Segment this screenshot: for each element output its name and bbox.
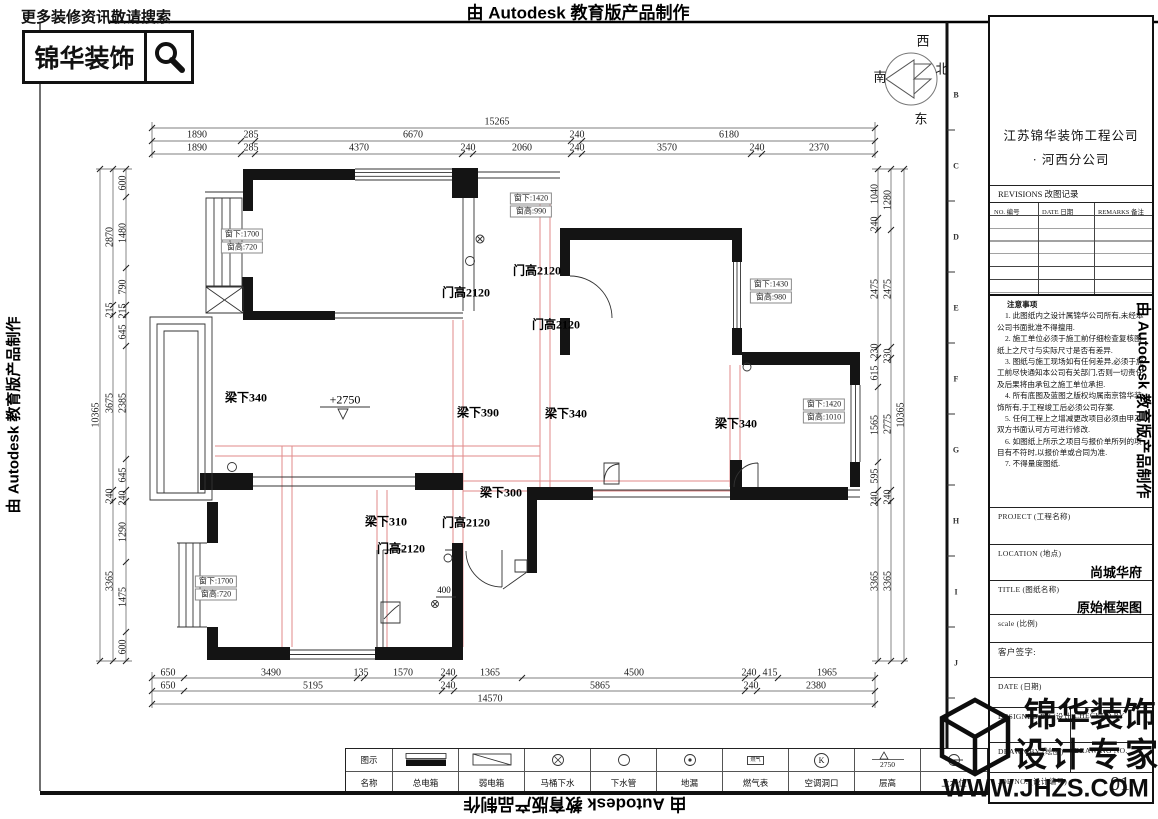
dim: 615 — [870, 366, 881, 381]
legend-item-name: 总电箱 — [393, 772, 459, 793]
water-supply-icon — [921, 749, 987, 772]
dim: 215 — [105, 303, 116, 318]
weak-electric-box-icon — [459, 749, 525, 772]
floor-drain-icon — [657, 749, 723, 772]
compass-north: 北 — [935, 59, 948, 78]
watermark-website: WWW.JHZS.COM — [943, 775, 1149, 804]
dim: 1890 — [187, 143, 207, 154]
search-icon — [147, 33, 191, 81]
title-block: 江苏锦华装饰工程公司 · 河西分公司 REVISIONS 改图记录 NO. 编号… — [988, 15, 1154, 804]
note-item: 5. 任何工程上之增减更改项目必须由甲乙双方书面认可方可进行修改. — [997, 413, 1146, 436]
floor-height-value: 2750 — [880, 761, 895, 769]
grid-letter: D — [953, 233, 959, 242]
compass-south: 南 — [873, 67, 886, 86]
dim: 415 — [763, 668, 778, 679]
dim-left-total: 10365 — [91, 403, 102, 428]
promo-tagline: 更多装修资讯敬请搜索 — [21, 6, 171, 27]
revisions-header: REVISIONS 改图记录 — [998, 188, 1079, 200]
dim: 1040 — [870, 184, 881, 204]
level-mark-triangle — [338, 409, 348, 419]
dim: 240 — [870, 217, 881, 232]
dim: 230 — [870, 344, 881, 359]
beam-label: 梁下310 — [365, 513, 407, 530]
dim: 645 — [118, 325, 129, 340]
autodesk-banner-right: 由 Autodesk 教育版产品制作 — [1134, 302, 1155, 499]
brand-search-box: 锦华装饰 — [22, 30, 194, 84]
beam-label: 梁下340 — [545, 405, 587, 422]
dim: 1290 — [118, 522, 129, 542]
door-height-label: 门高2120 — [513, 262, 561, 279]
dim: 240 — [744, 681, 759, 692]
dim: 240 — [441, 668, 456, 679]
dim: 600 — [118, 176, 129, 191]
dim: 2385 — [118, 393, 129, 413]
note-item: 6. 如图纸上所示之项目与报价单所列的项目有不符时,以报价单或合同为准. — [997, 436, 1146, 459]
window-height: 窗高:1010 — [803, 412, 845, 424]
note-item: 7. 不得量度图纸. — [997, 458, 1146, 469]
dim: 230 — [883, 349, 894, 364]
dim: 1480 — [118, 223, 129, 243]
grid-letter: E — [953, 304, 958, 313]
dim: 135 — [354, 668, 369, 679]
window-sill: 窗下:1700 — [195, 576, 237, 588]
dim: 240 — [742, 668, 757, 679]
beam-label: 梁下390 — [457, 404, 499, 421]
dim: 2775 — [883, 414, 894, 434]
floor-height-icon: 2750 — [855, 749, 921, 772]
beam-label: 梁下340 — [715, 415, 757, 432]
location-value: 尚城华府 — [1090, 562, 1142, 581]
dim: 1570 — [393, 668, 413, 679]
dim: 3365 — [870, 571, 881, 591]
window-tag: 窗下:1420 窗高:1010 — [803, 399, 845, 424]
window-sill: 窗下:1420 — [510, 193, 552, 205]
toilet-drain-icon — [525, 749, 591, 772]
note-item: 2. 施工单位必须于施工前仔细检查复核图纸上之尺寸与实际尺寸是否有差异. — [997, 333, 1146, 356]
dim: 1565 — [870, 415, 881, 435]
dim: 240 — [105, 489, 116, 504]
dim: 2060 — [512, 143, 532, 154]
dim: 3675 — [105, 393, 116, 413]
grid-letter: J — [954, 659, 958, 668]
legend-name-row-label: 名称 — [346, 772, 393, 793]
grid-letter: B — [953, 91, 958, 100]
note-item: 3. 图纸与施工现场如有任何差异,必须于施工前尽快通知本公司有关部门,否则一切责… — [997, 356, 1146, 390]
dim: 5195 — [303, 681, 323, 692]
gas-meter-icon: 燃气 — [723, 749, 789, 772]
dim: 5865 — [590, 681, 610, 692]
dim: 3365 — [105, 571, 116, 591]
notes-block: 注意事项 1. 此图纸内之设计属锦华公司所有,未经本公司书面批准不得擅用. 2.… — [997, 299, 1146, 470]
compass-icon — [885, 53, 937, 105]
autodesk-banner-bottom: 由 Autodesk 教育版产品制作 — [464, 794, 687, 819]
dim: 240 — [570, 143, 585, 154]
company-branch: · 河西分公司 — [990, 149, 1152, 168]
grid-letter: I — [954, 588, 957, 597]
compass-east: 东 — [914, 109, 927, 128]
dim: 240 — [883, 490, 894, 505]
dim: 3365 — [883, 571, 894, 591]
dim: 650 — [161, 668, 176, 679]
window-tag: 窗下:1420 窗高:990 — [510, 193, 552, 218]
company-name: 江苏锦华装饰工程公司 — [990, 125, 1152, 144]
dim: 240 — [441, 681, 456, 692]
dim: 2870 — [105, 227, 116, 247]
dim: 240 — [461, 143, 476, 154]
window-tag: 窗下:1700 窗高:720 — [221, 229, 263, 254]
dim: 1475 — [118, 587, 129, 607]
main-electric-box-icon — [393, 749, 459, 772]
dim: 1365 — [480, 668, 500, 679]
grid-letter: H — [953, 517, 959, 526]
title-label: TITLE (图纸名称) — [998, 584, 1059, 595]
legend-item-name: 地漏 — [657, 772, 723, 793]
dimension-lines — [96, 122, 908, 708]
legend-table: 图示 燃气 K 2750 名称 总电箱 弱电箱 马桶下水 下水管 地漏 燃气表 … — [345, 748, 988, 794]
brand-name: 锦华装饰 — [25, 33, 147, 81]
window-height: 窗高:720 — [221, 242, 263, 254]
legend-item-name: 弱电箱 — [459, 772, 525, 793]
autodesk-banner-left: 由 Autodesk 教育版产品制作 — [3, 317, 24, 514]
dim-top-total: 15265 — [485, 117, 510, 128]
dim: 650 — [161, 681, 176, 692]
door-height-label: 门高2120 — [442, 514, 490, 531]
location-label: LOCATION (地点) — [998, 548, 1061, 559]
door-height-label: 门高2120 — [532, 316, 580, 333]
dim: 1890 — [187, 130, 207, 141]
dim: 790 — [118, 280, 129, 295]
dim: 4500 — [624, 668, 644, 679]
window-height: 窗高:720 — [195, 589, 237, 601]
door-height-label: 门高2120 — [377, 540, 425, 557]
legend-symbol-row-label: 图示 — [346, 749, 393, 772]
window-height: 窗高:990 — [510, 206, 552, 218]
window-sill: 窗下:1430 — [750, 279, 792, 291]
dim: 600 — [118, 640, 129, 655]
dim: 285 — [244, 130, 259, 141]
drain-dim-label: 400 — [437, 585, 451, 595]
walls — [200, 168, 860, 660]
rev-col-no: NO. 编号 — [994, 206, 1020, 216]
dim: 240 — [870, 492, 881, 507]
dim: 3490 — [261, 668, 281, 679]
beam-label: 梁下340 — [225, 389, 267, 406]
grid-letter: F — [954, 375, 959, 384]
legend-item-name: 下水管 — [591, 772, 657, 793]
dim: 215 — [118, 304, 129, 319]
dim: 6180 — [719, 130, 739, 141]
legend-item-name: 空调洞口 — [789, 772, 855, 793]
dim: 1965 — [817, 668, 837, 679]
ac-hole-icon: K — [789, 749, 855, 772]
beam-lines — [215, 198, 740, 647]
dim: 1280 — [883, 190, 894, 210]
watermark-line2: 设计专家 — [1014, 728, 1158, 776]
dim: 4370 — [349, 143, 369, 154]
client-sign-label: 客户签字: — [998, 646, 1036, 658]
dim: 2380 — [806, 681, 826, 692]
dim: 240 — [750, 143, 765, 154]
legend-item-name: 马桶下水 — [525, 772, 591, 793]
legend-item-name: 层高 — [855, 772, 921, 793]
window-sill: 窗下:1420 — [803, 399, 845, 411]
project-label: PROJECT (工程名称) — [998, 511, 1071, 522]
door-height-label: 门高2120 — [442, 284, 490, 301]
rev-col-remarks: REMARKS 备注 — [1098, 206, 1144, 216]
dim: 240 — [570, 130, 585, 141]
dim: 595 — [870, 469, 881, 484]
dim: 2475 — [870, 279, 881, 299]
scale-label: scale (比例) — [998, 618, 1038, 629]
dim: 2475 — [883, 279, 894, 299]
dim: 3570 — [657, 143, 677, 154]
autodesk-banner-top: 由 Autodesk 教育版产品制作 — [467, 0, 690, 24]
notes-title: 注意事项 — [997, 299, 1146, 310]
compass-west: 西 — [916, 31, 929, 50]
window-sill: 窗下:1700 — [221, 229, 263, 241]
note-item: 1. 此图纸内之设计属锦华公司所有,未经本公司书面批准不得擅用. — [997, 310, 1146, 333]
grid-letter: G — [953, 446, 959, 455]
dim: 6670 — [403, 130, 423, 141]
beam-label: 梁下300 — [480, 484, 522, 501]
dim: 2370 — [809, 143, 829, 154]
window-height: 窗高:980 — [750, 292, 792, 304]
down-pipe-icon — [591, 749, 657, 772]
grid-letter: C — [953, 162, 959, 171]
dim: 285 — [244, 143, 259, 154]
rev-col-date: DATE 日期 — [1042, 206, 1073, 216]
legend-item-name: 燃气表 — [723, 772, 789, 793]
dimension-ticks — [97, 125, 907, 707]
window-tag: 窗下:1430 窗高:980 — [750, 279, 792, 304]
dim: 240 — [118, 491, 129, 506]
dim-bottom-total: 14570 — [478, 694, 503, 705]
window-tag: 窗下:1700 窗高:720 — [195, 576, 237, 601]
note-item: 4. 所有底图及蓝图之版权均属南京锦华装饰所有,于工程竣工后必须公司存案. — [997, 390, 1146, 413]
dim-right-total: 10365 — [896, 403, 907, 428]
dim: 645 — [118, 468, 129, 483]
level-mark-label: +2750 — [330, 393, 361, 408]
